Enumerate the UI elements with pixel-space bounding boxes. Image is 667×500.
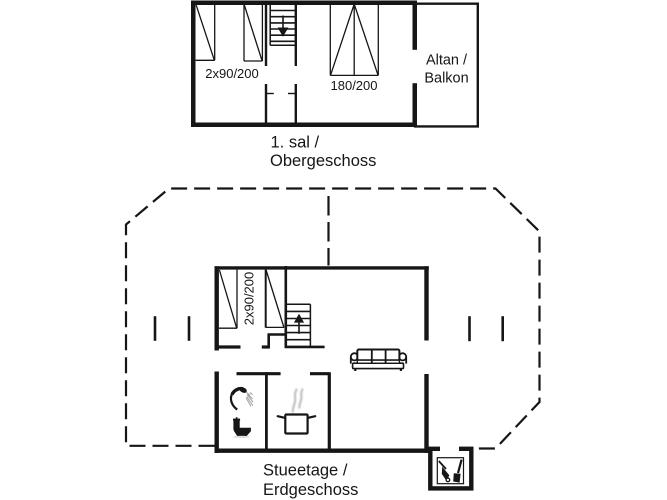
svg-text:1. sal /: 1. sal / (271, 133, 320, 151)
svg-text:Balkon: Balkon (424, 71, 468, 87)
svg-text:2x90/200: 2x90/200 (242, 272, 257, 326)
svg-text:Stueetage /: Stueetage / (263, 462, 348, 480)
svg-text:180/200: 180/200 (331, 78, 378, 93)
svg-text:Altan /: Altan / (426, 53, 468, 69)
svg-text:Erdgeschoss: Erdgeschoss (263, 481, 358, 499)
svg-text:Obergeschoss: Obergeschoss (270, 152, 376, 170)
svg-text:2x90/200: 2x90/200 (205, 66, 259, 81)
